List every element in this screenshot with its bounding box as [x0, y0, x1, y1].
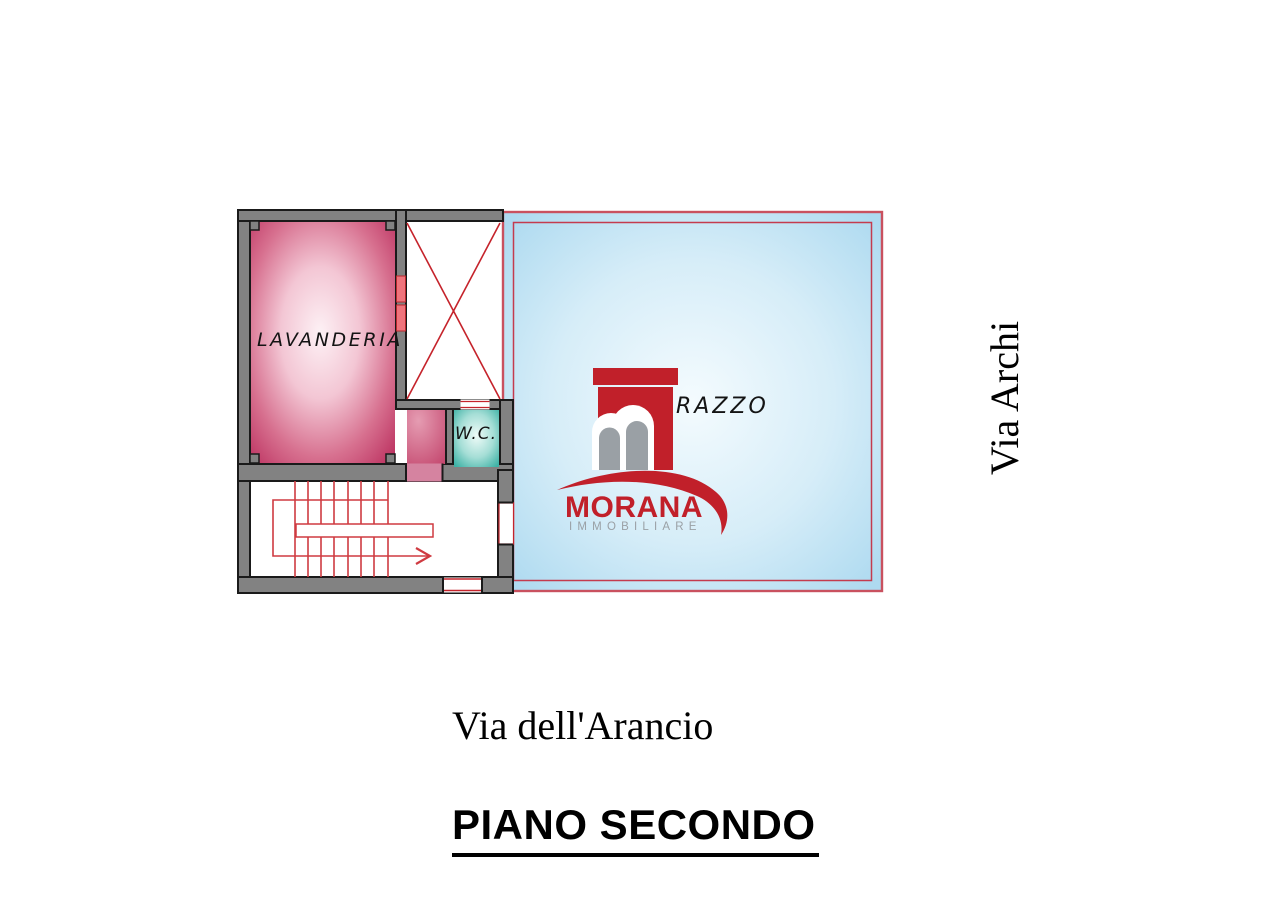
street-label-via-archi: Via Archi	[984, 248, 1026, 548]
room-label-wc: W.C.	[452, 424, 500, 444]
stair-mid-landing	[296, 524, 433, 537]
wall-top	[238, 210, 503, 221]
room-lavanderia-extension	[407, 410, 445, 464]
wall-shaft-bottom	[396, 400, 513, 409]
room-label-terrazzo-partial: RAZZO	[676, 394, 769, 419]
window-lavanderia-upper	[397, 276, 406, 302]
wall-wc-right	[500, 400, 513, 470]
logo-subtitle: IMMOBILIARE	[569, 521, 702, 533]
street-label-via-dell-arancio: Via dell'Arancio	[452, 702, 713, 749]
floorplan-page: LAVANDERIA W.C. RAZZO MORANA IMMOBILIARE…	[0, 0, 1274, 900]
logo-brand-name: MORANA	[565, 491, 703, 525]
room-label-lavanderia: LAVANDERIA	[257, 329, 403, 351]
window-lavanderia-lower	[397, 305, 406, 331]
wall-left	[238, 210, 250, 593]
floorplan-drawing	[0, 0, 1274, 900]
door-terrace	[499, 503, 514, 544]
door-corridor	[406, 464, 442, 482]
floor-title: PIANO SECONDO	[452, 801, 819, 857]
